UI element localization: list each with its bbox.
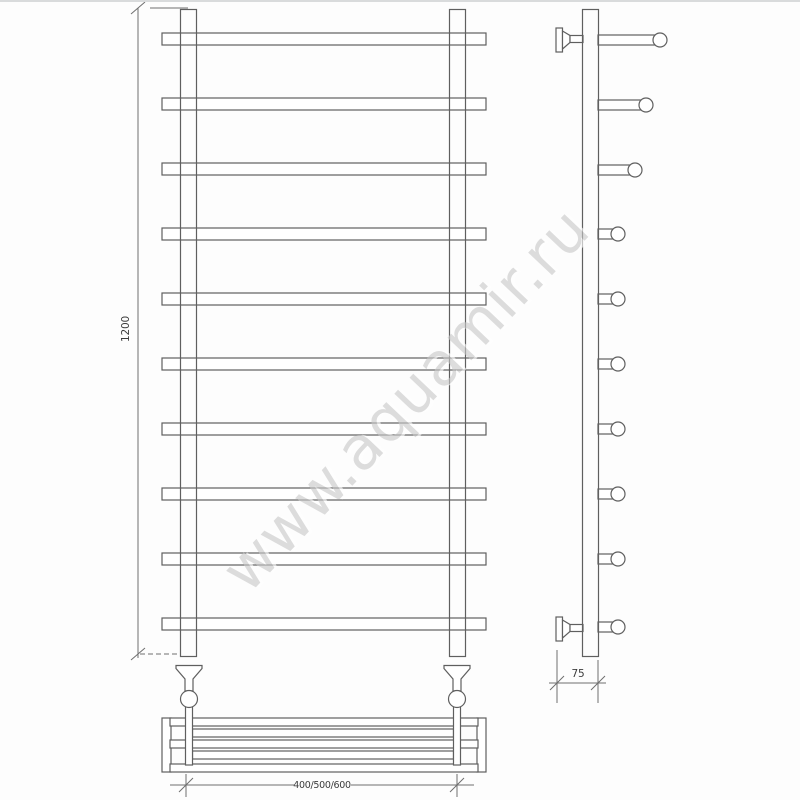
bottom-bracket-cone [563, 620, 571, 638]
front-rung [162, 423, 486, 435]
dim-width: 400/500/600 [170, 774, 474, 797]
shelf-bar-inset [193, 729, 454, 737]
shelf [162, 718, 486, 772]
side-rung-end [639, 98, 653, 112]
top-bracket-cone [563, 31, 571, 49]
right-valve [444, 666, 470, 766]
dim-depth-label: 75 [572, 668, 585, 680]
right-valve-funnel [444, 666, 470, 692]
front-rung [162, 163, 486, 175]
left-valve-funnel [176, 666, 202, 692]
dim-width-label: 400/500/600 [293, 780, 351, 791]
left-valve-ball [181, 691, 198, 708]
left-valve [176, 666, 202, 766]
top-bracket-plate [556, 28, 563, 52]
dim-depth: 75 [549, 650, 606, 703]
front-rung [162, 33, 486, 45]
right-valve-ball [449, 691, 466, 708]
side-rungs [598, 33, 667, 634]
bottom-wall-bracket [556, 617, 583, 641]
technical-drawing-canvas: 1200 400/500/600 75 www.aquamir.ru www.a… [0, 0, 800, 800]
side-rung-end [611, 227, 625, 241]
side-rung-end [653, 33, 667, 47]
side-rung-end [628, 163, 642, 177]
side-post [583, 10, 599, 657]
valves [176, 666, 470, 766]
shelf-bar [170, 740, 478, 748]
front-rung [162, 98, 486, 110]
bottom-bracket-stem [570, 625, 583, 632]
side-rung-end [611, 357, 625, 371]
right-valve-stem [454, 699, 461, 765]
shelf-bar-inset [193, 751, 454, 759]
side-rung-stub [598, 35, 660, 45]
side-rung-end [611, 292, 625, 306]
shelf-bar [170, 718, 478, 726]
top-wall-bracket [556, 28, 583, 52]
dim-height-label: 1200 [120, 316, 132, 342]
front-rung [162, 618, 486, 630]
top-bracket-stem [570, 36, 583, 43]
bottom-bracket-plate [556, 617, 563, 641]
side-view [556, 10, 667, 657]
side-rung-end [611, 422, 625, 436]
watermark-text: www.aquamir.ru [208, 194, 603, 605]
front-rung [162, 228, 486, 240]
side-rung-end [611, 487, 625, 501]
side-rung-end [611, 552, 625, 566]
towel-rail-drawing-page: 1200 400/500/600 75 www.aquamir.ru www.a… [0, 0, 800, 800]
image-top-edge [0, 0, 800, 2]
front-rung [162, 293, 486, 305]
left-valve-stem [186, 699, 193, 765]
shelf-bar [170, 764, 478, 772]
watermark: www.aquamir.ru www.aquamir.ru [208, 193, 607, 608]
side-rung-end [611, 620, 625, 634]
